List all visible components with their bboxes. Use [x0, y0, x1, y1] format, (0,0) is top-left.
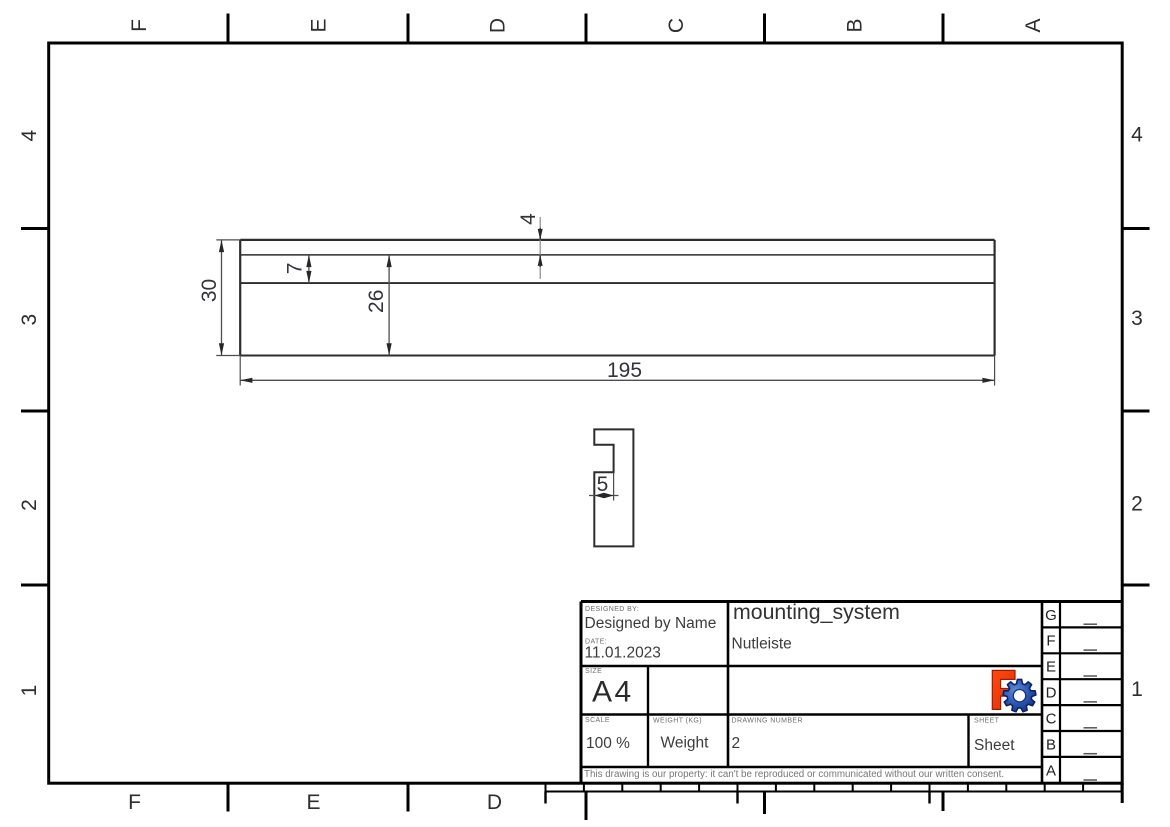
svg-text:SCALE: SCALE — [585, 717, 610, 724]
svg-text:11.01.2023: 11.01.2023 — [585, 645, 661, 662]
svg-text:SIZE: SIZE — [585, 668, 602, 675]
svg-text:D: D — [487, 18, 510, 33]
svg-text:F: F — [1046, 633, 1055, 650]
svg-text:3: 3 — [1131, 307, 1143, 330]
svg-text:4: 4 — [1131, 124, 1143, 147]
svg-text:A: A — [1046, 762, 1056, 779]
svg-text:C: C — [1046, 710, 1057, 727]
svg-text:mounting_system: mounting_system — [733, 600, 900, 624]
svg-text:D: D — [1046, 685, 1057, 702]
svg-text:F: F — [128, 19, 151, 32]
svg-text:2: 2 — [18, 499, 41, 511]
svg-text:Designed by Name: Designed by Name — [585, 615, 717, 632]
svg-text:F: F — [128, 791, 141, 814]
svg-text:4: 4 — [517, 213, 540, 225]
svg-text:G: G — [1045, 607, 1057, 624]
svg-text:This drawing is our property:: This drawing is our property: it can't b… — [584, 769, 1004, 780]
svg-text:DESIGNED BY:: DESIGNED BY: — [585, 606, 639, 613]
svg-text:26: 26 — [365, 290, 388, 313]
svg-text:2: 2 — [1131, 493, 1143, 516]
svg-text:Weight: Weight — [661, 735, 710, 752]
svg-text:1: 1 — [1131, 678, 1143, 701]
svg-text:A: A — [1022, 18, 1045, 32]
svg-text:E: E — [308, 18, 331, 32]
svg-text:5: 5 — [597, 473, 609, 496]
svg-text:E: E — [1046, 659, 1056, 676]
svg-text:C: C — [665, 18, 688, 33]
svg-text:E: E — [306, 791, 320, 814]
svg-text:3: 3 — [18, 314, 41, 326]
svg-text:B: B — [1046, 736, 1056, 753]
svg-text:7: 7 — [284, 263, 307, 275]
svg-text:195: 195 — [607, 359, 642, 382]
svg-text:A4: A4 — [592, 676, 634, 709]
svg-text:4: 4 — [18, 130, 41, 142]
svg-text:30: 30 — [198, 279, 221, 302]
svg-text:SHEET: SHEET — [974, 717, 1000, 724]
svg-text:WEIGHT (KG): WEIGHT (KG) — [653, 717, 702, 724]
svg-text:Nutleiste: Nutleiste — [732, 635, 792, 652]
svg-text:D: D — [487, 791, 502, 814]
svg-text:B: B — [843, 18, 866, 32]
svg-text:100 %: 100 % — [586, 735, 630, 752]
svg-text:1: 1 — [18, 685, 41, 697]
svg-text:2: 2 — [732, 735, 741, 752]
svg-text:DRAWING NUMBER: DRAWING NUMBER — [732, 717, 803, 724]
svg-text:Sheet: Sheet — [974, 737, 1015, 754]
